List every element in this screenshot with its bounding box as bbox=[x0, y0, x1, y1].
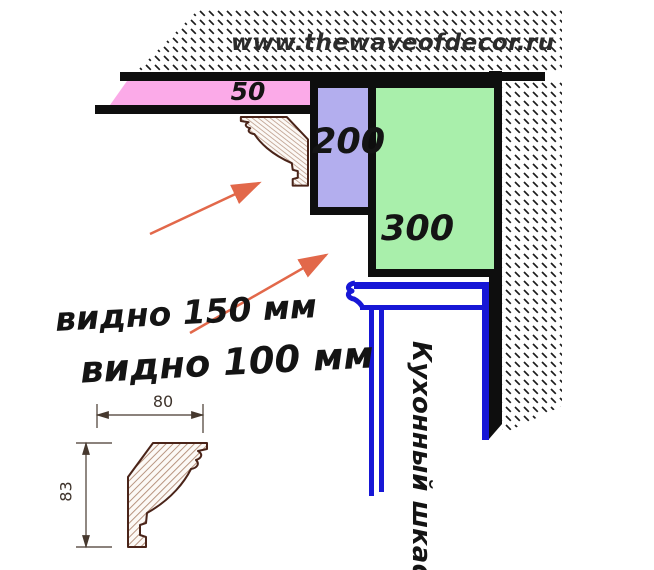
gap-50-label: 50 bbox=[222, 77, 274, 106]
pink-gap-strip bbox=[110, 81, 312, 105]
drop-300-label: 300 bbox=[381, 209, 453, 249]
drop-200-label: 200 bbox=[312, 122, 374, 162]
profile-width-label: 80 bbox=[140, 392, 186, 411]
watermark: www.thewaveofdecor.ru bbox=[231, 30, 531, 56]
wall-hatch-area bbox=[502, 80, 562, 434]
ceiling-line bbox=[120, 72, 545, 81]
profile-section bbox=[128, 443, 207, 547]
profile-drawing bbox=[76, 404, 207, 547]
cornice-diagram-page: www.thewaveofdecor.ru 50 200 300 видно 1… bbox=[0, 0, 654, 570]
cabinet-label: Кухонный шкаф bbox=[392, 341, 436, 570]
arrow-to-150-molding bbox=[150, 183, 259, 234]
profile-height-label: 83 bbox=[57, 472, 76, 512]
crown-molding-section bbox=[241, 117, 308, 186]
diagram-canvas bbox=[0, 0, 654, 570]
soffit-line bbox=[95, 105, 314, 114]
